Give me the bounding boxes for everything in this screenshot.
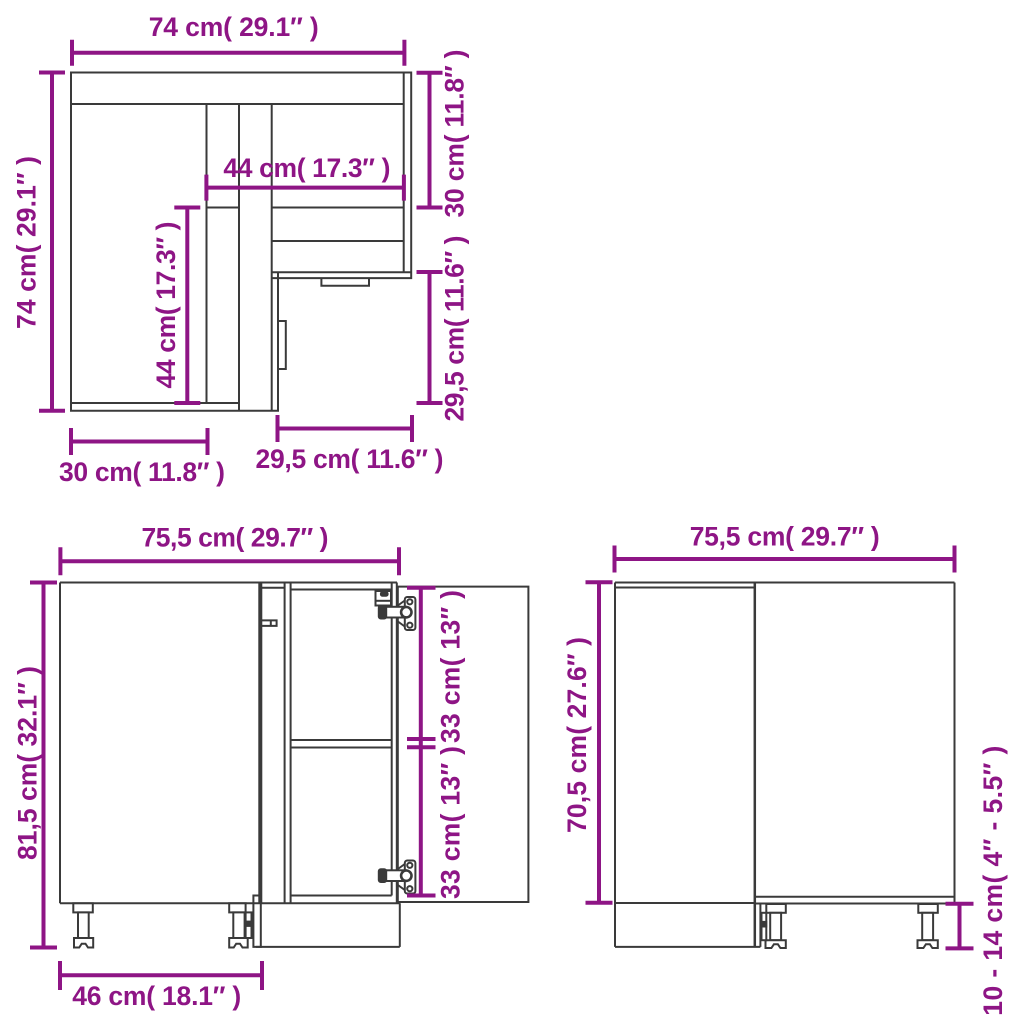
svg-text:30 cm( 11.8″ ): 30 cm( 11.8″ ): [440, 50, 470, 218]
svg-text:74 cm( 29.1″ ): 74 cm( 29.1″ ): [149, 12, 319, 42]
svg-text:33 cm( 13″ ): 33 cm( 13″ ): [436, 746, 466, 899]
svg-text:44 cm( 17.3″ ): 44 cm( 17.3″ ): [223, 153, 390, 183]
svg-text:30 cm( 11.8″ ): 30 cm( 11.8″ ): [59, 457, 225, 487]
svg-text:10 - 14 cm( 4″ - 5.5″ ): 10 - 14 cm( 4″ - 5.5″ ): [978, 746, 1008, 1016]
svg-text:75,5 cm( 29.7″ ): 75,5 cm( 29.7″ ): [142, 523, 329, 553]
svg-text:75,5 cm( 29.7″ ): 75,5 cm( 29.7″ ): [690, 522, 880, 552]
svg-text:70,5 cm( 27.6″ ): 70,5 cm( 27.6″ ): [562, 637, 592, 833]
svg-text:33 cm( 13″ ): 33 cm( 13″ ): [436, 590, 466, 743]
svg-text:81,5 cm( 32.1″ ): 81,5 cm( 32.1″ ): [13, 666, 43, 860]
svg-text:29,5 cm( 11.6″ ): 29,5 cm( 11.6″ ): [440, 236, 470, 422]
svg-text:44 cm( 17.3″ ): 44 cm( 17.3″ ): [151, 222, 181, 389]
svg-text:74 cm( 29.1″ ): 74 cm( 29.1″ ): [12, 156, 42, 329]
svg-text:46 cm( 18.1″ ): 46 cm( 18.1″ ): [72, 981, 241, 1011]
svg-text:29,5 cm( 11.6″ ): 29,5 cm( 11.6″ ): [256, 444, 444, 474]
